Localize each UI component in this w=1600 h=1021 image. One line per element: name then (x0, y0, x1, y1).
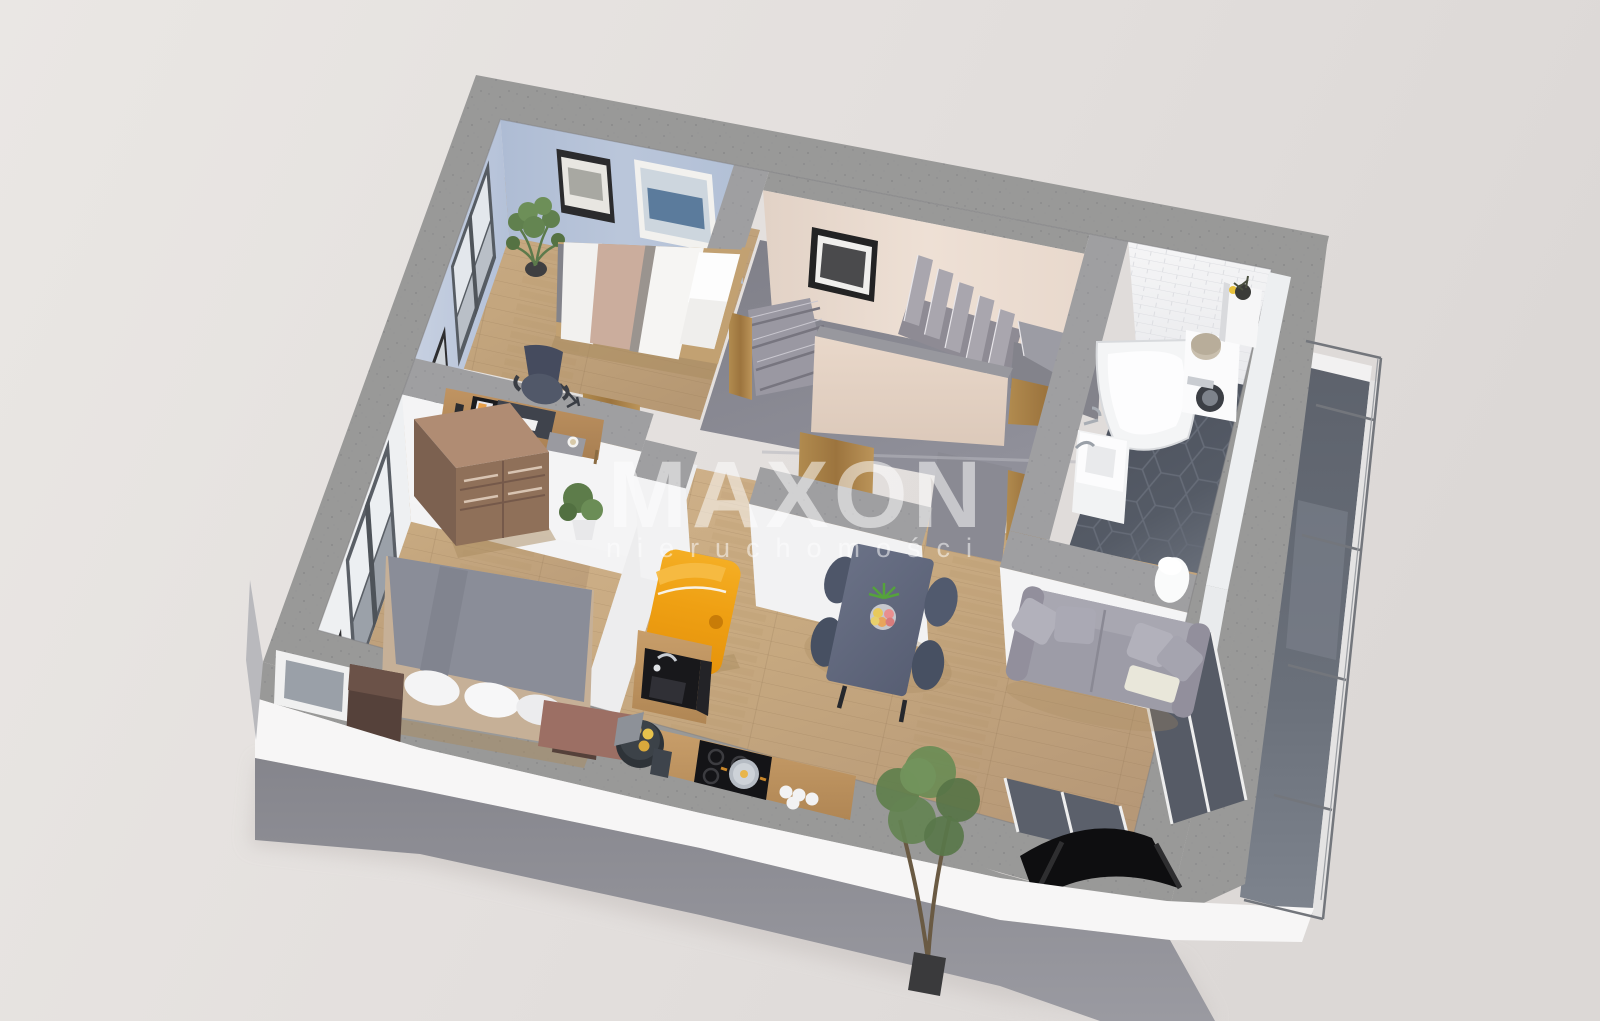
svg-text:nieruchomości: nieruchomości (606, 533, 988, 563)
